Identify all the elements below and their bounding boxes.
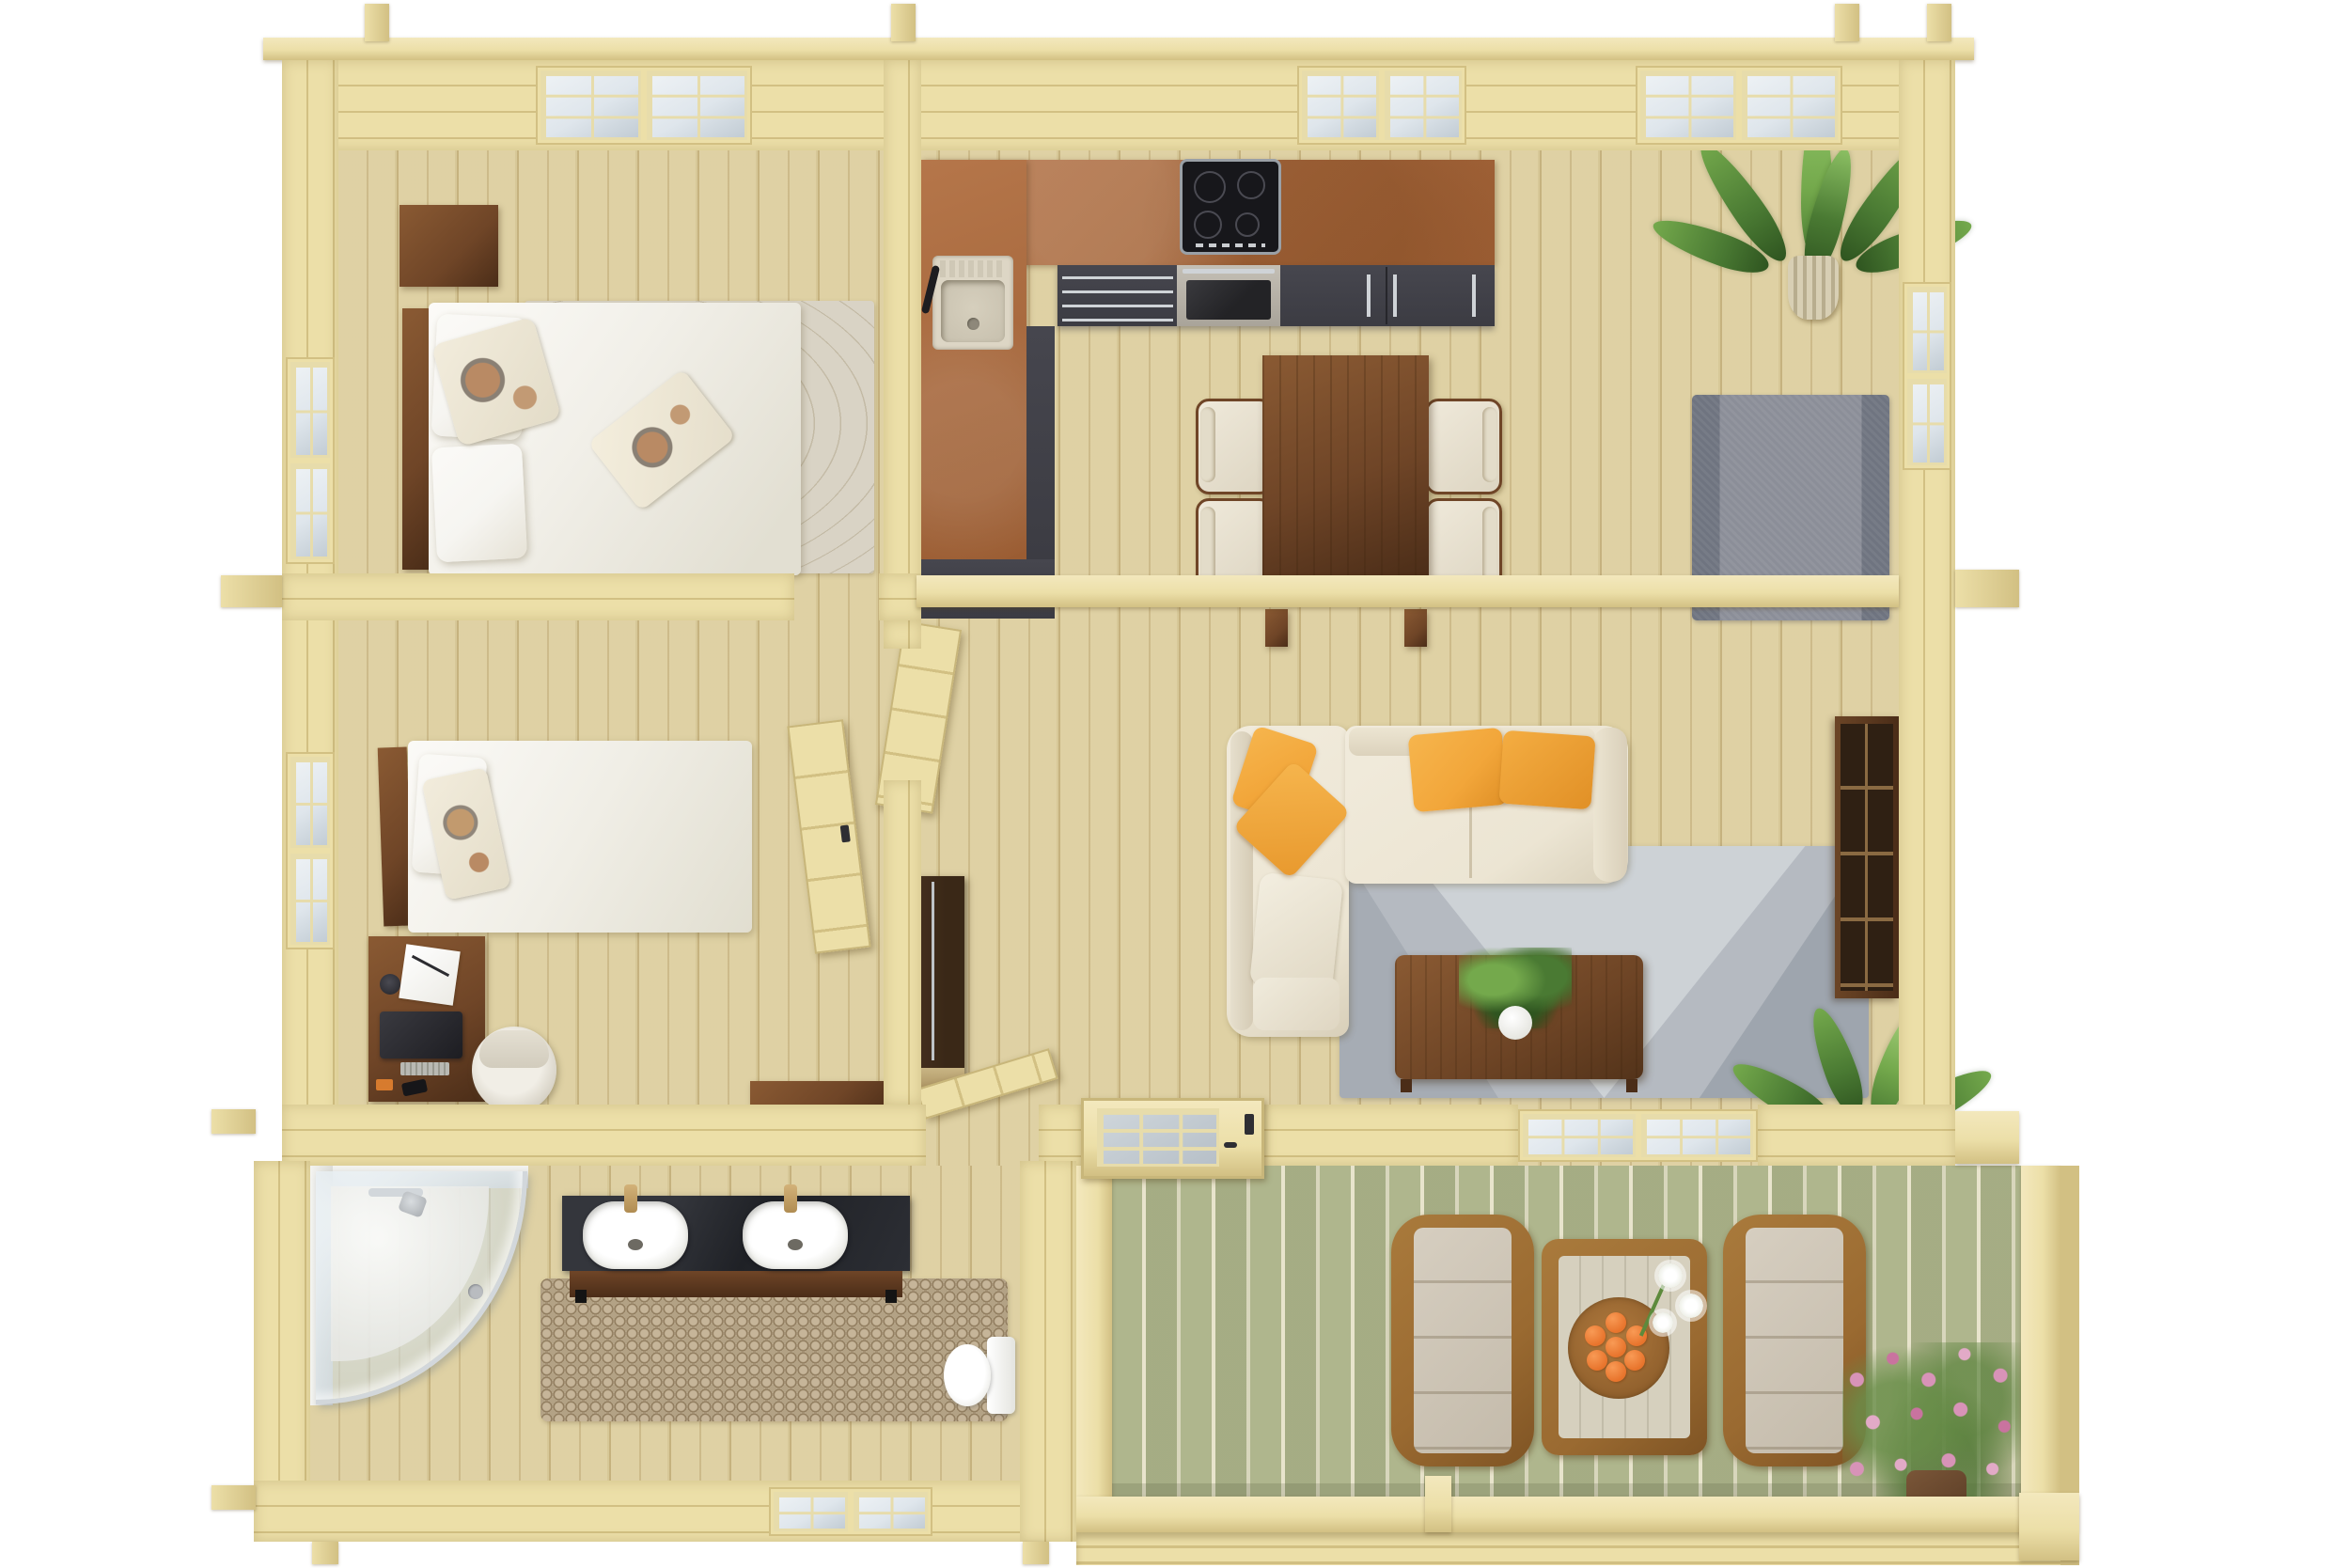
faucet-icon bbox=[784, 1184, 797, 1213]
notebook bbox=[399, 944, 461, 1006]
door-handle-icon bbox=[1224, 1142, 1237, 1148]
orange-fruit bbox=[1587, 1350, 1607, 1371]
window-living-east bbox=[1903, 282, 1951, 470]
dining-chair[interactable] bbox=[1196, 399, 1273, 494]
corner-shower[interactable] bbox=[310, 1166, 528, 1405]
log-end bbox=[1835, 4, 1859, 41]
lily-flower bbox=[1679, 1294, 1703, 1318]
drawer-stack[interactable] bbox=[1062, 267, 1173, 324]
log-end bbox=[1927, 4, 1951, 41]
wall-front-mid bbox=[1264, 1105, 1518, 1166]
top-plate-beam bbox=[263, 38, 1974, 60]
door-seam bbox=[1386, 267, 1387, 324]
window-bathroom-south bbox=[769, 1487, 932, 1536]
window-sash bbox=[290, 854, 330, 945]
shelf-seam bbox=[1865, 724, 1868, 991]
nightstand[interactable] bbox=[399, 205, 498, 287]
coffee-table-plant[interactable] bbox=[1459, 948, 1572, 1045]
table-leg bbox=[1626, 1079, 1637, 1092]
wall-east bbox=[1899, 60, 1955, 1166]
wicker-lounger[interactable] bbox=[1391, 1215, 1534, 1466]
kitchen-sink[interactable] bbox=[932, 256, 1013, 350]
chair-back-cushion bbox=[1482, 507, 1497, 582]
log-end bbox=[221, 575, 282, 607]
front-door[interactable] bbox=[1081, 1098, 1264, 1179]
window-sash bbox=[1523, 1114, 1636, 1157]
log-end bbox=[1955, 570, 2019, 607]
terrace-fascia-south bbox=[1076, 1532, 2077, 1565]
window-sash bbox=[1385, 71, 1462, 140]
vanity-leg bbox=[575, 1290, 587, 1303]
window-sash bbox=[1640, 71, 1736, 140]
table-leg bbox=[1265, 609, 1288, 647]
cabinet-handle-icon bbox=[1472, 274, 1476, 317]
dining-table[interactable] bbox=[1262, 355, 1429, 577]
terrace-corner-block-ne bbox=[1955, 1111, 2019, 1164]
oven[interactable] bbox=[1177, 265, 1280, 326]
chair-back-crescent bbox=[479, 1030, 549, 1068]
toilet-bowl bbox=[944, 1344, 991, 1406]
desk-item-orange bbox=[376, 1079, 393, 1090]
bookshelf[interactable] bbox=[1835, 716, 1899, 998]
phone[interactable] bbox=[401, 1078, 428, 1096]
palm-plant[interactable] bbox=[1726, 120, 1895, 322]
keyboard[interactable] bbox=[400, 1062, 449, 1075]
window-kitchen-north bbox=[1297, 66, 1466, 145]
window-sash bbox=[540, 71, 641, 140]
wall-front-jamb bbox=[1039, 1105, 1081, 1166]
window-sash bbox=[1907, 379, 1947, 465]
lily-flower bbox=[1658, 1263, 1683, 1288]
log-end bbox=[312, 1542, 338, 1564]
orange-fruit bbox=[1585, 1325, 1606, 1346]
vanity-leg bbox=[885, 1290, 897, 1303]
sink-drain bbox=[967, 318, 979, 330]
window-sash bbox=[854, 1492, 928, 1531]
cabinet-handle-icon bbox=[1393, 274, 1397, 317]
oven-window bbox=[1186, 280, 1271, 320]
single-bed[interactable] bbox=[381, 741, 752, 933]
window-sash bbox=[290, 362, 330, 458]
cabinet-seam bbox=[932, 882, 934, 1060]
window-sash bbox=[1907, 287, 1947, 373]
terrace-railing-east bbox=[2021, 1166, 2060, 1532]
chaise-cushion bbox=[1249, 872, 1343, 994]
bathroom-wall-south bbox=[254, 1481, 1076, 1542]
sink-basin bbox=[941, 280, 1005, 342]
orange-fruit bbox=[1606, 1337, 1626, 1357]
lounger-cushion bbox=[1414, 1228, 1512, 1453]
bench[interactable] bbox=[750, 1081, 901, 1105]
oven-handle bbox=[1183, 269, 1275, 274]
window-sash bbox=[647, 71, 747, 140]
bed-pillow-white-2 bbox=[431, 444, 527, 563]
bathroom-wall-east bbox=[1020, 1161, 1076, 1542]
double-bed[interactable] bbox=[402, 303, 801, 575]
palm-pot bbox=[1788, 256, 1839, 320]
terrace-post-left bbox=[1076, 1166, 1112, 1497]
window-sash bbox=[1302, 71, 1379, 140]
wicker-table[interactable] bbox=[1542, 1239, 1707, 1455]
terrace-railing-south bbox=[1076, 1497, 2077, 1532]
cooktop-controls bbox=[1196, 243, 1265, 247]
toilet-tank bbox=[987, 1337, 1015, 1414]
sofa-arm bbox=[1593, 728, 1627, 882]
wall-bedrooms-divider-stub bbox=[879, 573, 921, 620]
orange-fruit bbox=[1624, 1350, 1645, 1371]
log-end bbox=[211, 1485, 256, 1510]
orange-fruit bbox=[1606, 1312, 1626, 1333]
cabinet-front-left[interactable] bbox=[1026, 326, 1055, 559]
burner-icon bbox=[1194, 211, 1222, 239]
window-bedroom-north bbox=[536, 66, 752, 145]
cabinet-doors-right[interactable] bbox=[1284, 267, 1491, 324]
chair-back-cushion bbox=[1200, 407, 1215, 482]
window-sash bbox=[1742, 71, 1838, 140]
log-end bbox=[1023, 1542, 1049, 1564]
wall-bedrooms-divider bbox=[282, 573, 794, 620]
plant-pot bbox=[1498, 1006, 1532, 1040]
burner-icon bbox=[1235, 212, 1260, 237]
vanity[interactable] bbox=[562, 1196, 910, 1297]
wall-bedroom2-hall-lower bbox=[884, 780, 921, 1105]
log-end bbox=[365, 4, 389, 41]
chaise-cushion2 bbox=[1253, 978, 1339, 1030]
railing-post bbox=[1425, 1476, 1451, 1532]
railing-corner-post bbox=[2019, 1493, 2079, 1560]
window-bedroom-west bbox=[286, 357, 335, 564]
sink-drain bbox=[628, 1239, 643, 1250]
table-leg bbox=[1404, 609, 1427, 647]
pencil-cup bbox=[380, 974, 400, 995]
burner-icon bbox=[1194, 171, 1226, 203]
computer-monitor[interactable] bbox=[380, 1011, 462, 1058]
kitchen-counter-left-run[interactable] bbox=[921, 160, 1026, 559]
window-sash bbox=[290, 463, 330, 559]
pebble-mat[interactable] bbox=[540, 1278, 1008, 1421]
headboard bbox=[402, 308, 431, 570]
dining-chair[interactable] bbox=[1425, 399, 1502, 494]
chair-back-cushion bbox=[1200, 507, 1215, 582]
lounger-cushion bbox=[1746, 1228, 1843, 1453]
sink-drainboard bbox=[940, 260, 1006, 277]
orange-pillow bbox=[1408, 728, 1509, 812]
desk[interactable] bbox=[368, 936, 485, 1102]
shower-drain bbox=[468, 1284, 483, 1299]
tie-beam bbox=[916, 575, 1899, 607]
lily-flower bbox=[1653, 1312, 1673, 1333]
vanity-base bbox=[570, 1271, 902, 1297]
window-living-front bbox=[1518, 1109, 1758, 1162]
window-bedroom2-west bbox=[286, 752, 335, 949]
faucet-icon bbox=[624, 1184, 637, 1213]
wall-bedroom-kitchen bbox=[884, 60, 921, 620]
log-end bbox=[891, 4, 916, 41]
cabinet-handle-icon bbox=[1367, 274, 1371, 317]
burner-icon bbox=[1237, 171, 1265, 199]
chair-back-cushion bbox=[1482, 407, 1497, 482]
window-dining-north bbox=[1636, 66, 1842, 145]
wall-bedroom2-hall-upper bbox=[884, 620, 921, 649]
sink-drain bbox=[788, 1239, 803, 1250]
window-sash bbox=[290, 757, 330, 848]
orange-pillow bbox=[1498, 730, 1595, 810]
orange-fruit bbox=[1606, 1361, 1626, 1382]
window-sash bbox=[774, 1492, 848, 1531]
desk-chair[interactable] bbox=[472, 1027, 556, 1113]
toilet[interactable] bbox=[944, 1333, 1015, 1419]
door-handle-icon bbox=[840, 824, 851, 842]
door-glass-panes bbox=[1097, 1108, 1219, 1167]
door-hinge-icon bbox=[1245, 1114, 1254, 1135]
log-end bbox=[211, 1109, 256, 1134]
induction-cooktop[interactable] bbox=[1183, 162, 1278, 252]
wall-front-west bbox=[282, 1105, 926, 1166]
window-sash bbox=[1641, 1114, 1754, 1157]
wall-front-east bbox=[1758, 1105, 1955, 1166]
table-leg bbox=[1401, 1079, 1412, 1092]
